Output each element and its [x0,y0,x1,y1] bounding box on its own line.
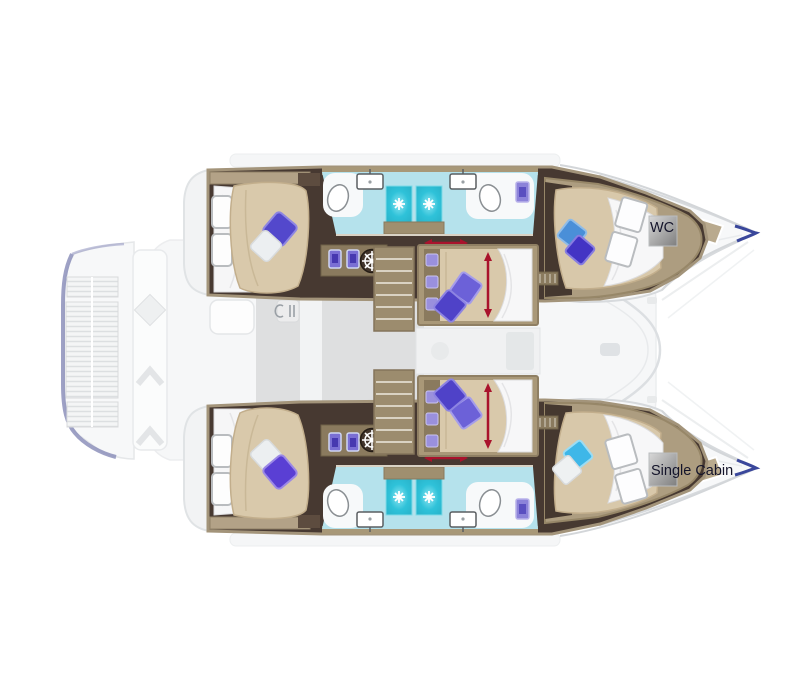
single-cabin-label: Single Cabin [651,463,733,479]
galley-utensils-icon [275,300,299,322]
wc-label: WC [650,220,674,236]
aft-walkway [133,250,167,450]
wc-annotation: WC [649,216,677,246]
floorplan-canvas: WC Single Cabin [0,0,800,700]
catamaran-floorplan: WC Single Cabin [0,0,800,700]
